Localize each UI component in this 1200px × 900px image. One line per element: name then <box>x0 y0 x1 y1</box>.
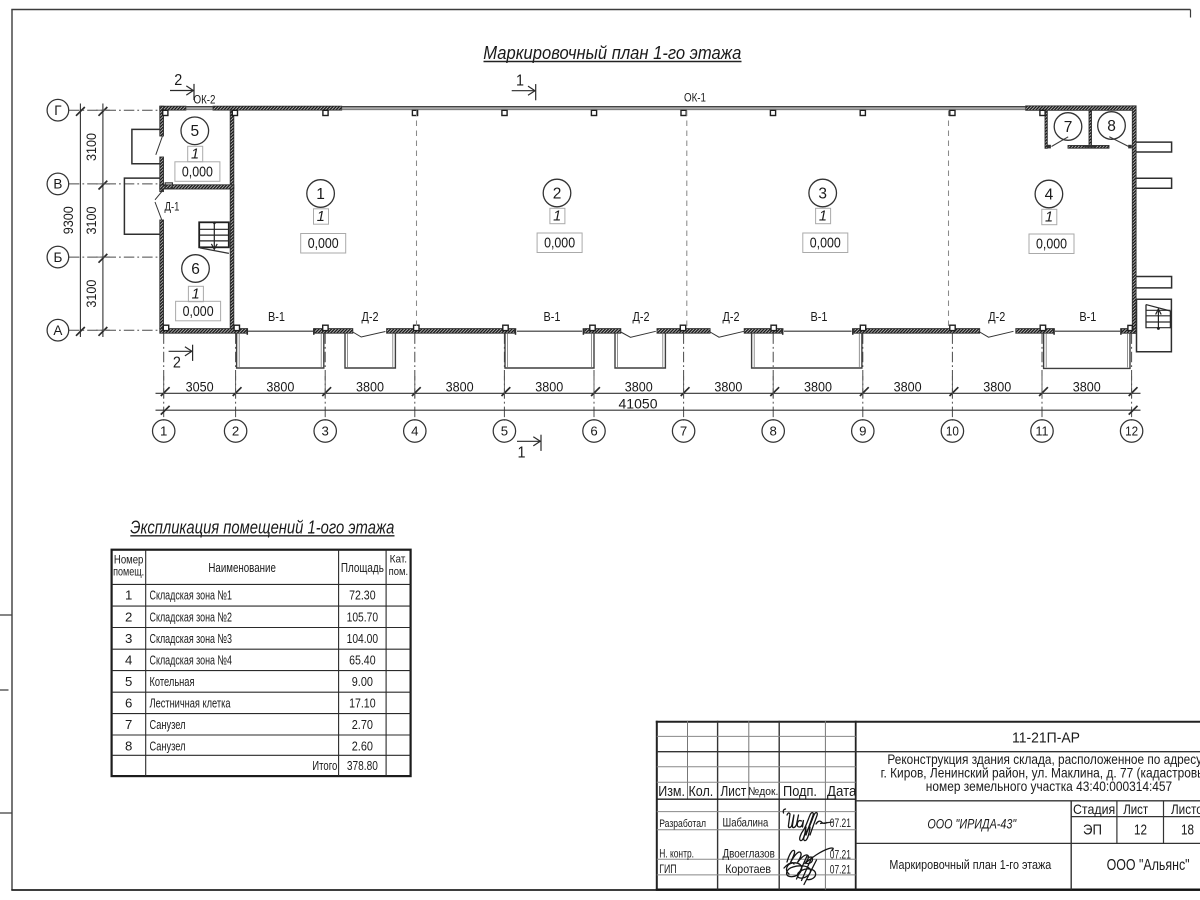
svg-text:72.30: 72.30 <box>349 588 376 603</box>
svg-text:Наименование: Наименование <box>208 560 276 575</box>
svg-text:3800: 3800 <box>625 379 653 395</box>
svg-text:2: 2 <box>125 609 132 624</box>
svg-text:8: 8 <box>1107 118 1116 135</box>
svg-text:2.70: 2.70 <box>352 717 373 732</box>
svg-text:07.21: 07.21 <box>830 863 851 877</box>
svg-text:пом.: пом. <box>389 566 409 578</box>
svg-text:12: 12 <box>1125 424 1138 439</box>
svg-text:3: 3 <box>322 424 329 439</box>
svg-text:4: 4 <box>411 424 418 439</box>
svg-text:6: 6 <box>191 261 200 278</box>
svg-text:2: 2 <box>173 355 181 372</box>
svg-text:4: 4 <box>1045 186 1054 203</box>
svg-text:17.10: 17.10 <box>349 696 376 711</box>
svg-text:1: 1 <box>1045 210 1053 226</box>
svg-text:6: 6 <box>590 424 597 439</box>
svg-text:1: 1 <box>160 424 167 439</box>
svg-text:3800: 3800 <box>446 379 474 395</box>
svg-text:В-1: В-1 <box>811 310 828 324</box>
svg-text:Маркировочный план 1-го этажа: Маркировочный план 1-го этажа <box>889 857 1051 872</box>
svg-text:В: В <box>53 177 62 192</box>
svg-text:Д-2: Д-2 <box>633 310 650 324</box>
svg-text:Итого: Итого <box>312 758 337 773</box>
svg-text:07.21: 07.21 <box>830 816 851 830</box>
svg-text:3100: 3100 <box>84 133 100 161</box>
svg-text:Санузел: Санузел <box>150 738 186 753</box>
svg-text:ГИП: ГИП <box>659 862 676 876</box>
svg-text:1: 1 <box>819 209 827 225</box>
svg-text:0,000: 0,000 <box>1036 237 1067 253</box>
svg-text:Д-2: Д-2 <box>362 310 379 324</box>
svg-text:помещ.: помещ. <box>113 565 144 579</box>
svg-text:ОК-2: ОК-2 <box>194 93 216 106</box>
svg-text:номер земельного участка 43:40: номер земельного участка 43:40:000314:45… <box>926 779 1172 794</box>
svg-text:5: 5 <box>501 424 508 439</box>
svg-text:11: 11 <box>1036 424 1049 439</box>
svg-text:Складская зона №4: Складская зона №4 <box>150 653 233 668</box>
svg-text:Складская зона №1: Складская зона №1 <box>150 588 233 603</box>
svg-text:0,000: 0,000 <box>182 164 213 180</box>
svg-text:41050: 41050 <box>619 396 658 412</box>
svg-text:Н. контр.: Н. контр. <box>659 847 694 860</box>
svg-text:Экспликация помещений 1-ого эт: Экспликация помещений 1-ого этажа <box>130 517 394 537</box>
svg-text:0,000: 0,000 <box>183 304 214 320</box>
svg-text:Лист: Лист <box>1123 802 1148 817</box>
svg-text:ООО "ИРИДА-43": ООО "ИРИДА-43" <box>927 817 1017 832</box>
svg-text:Коротаев: Коротаев <box>725 862 771 876</box>
svg-text:Б: Б <box>53 250 62 265</box>
svg-text:Шабалина: Шабалина <box>723 816 769 830</box>
svg-text:8: 8 <box>770 424 777 439</box>
svg-text:№док.: №док. <box>748 786 778 798</box>
svg-text:Разработал: Разработал <box>659 818 706 830</box>
svg-text:3800: 3800 <box>356 379 384 395</box>
svg-text:В-1: В-1 <box>1079 310 1096 324</box>
svg-text:3800: 3800 <box>1073 379 1101 395</box>
svg-text:7: 7 <box>680 424 687 439</box>
svg-text:6: 6 <box>125 696 132 711</box>
svg-text:12: 12 <box>1134 823 1147 839</box>
svg-text:5: 5 <box>190 123 199 140</box>
svg-text:1: 1 <box>191 147 199 163</box>
svg-text:2: 2 <box>174 72 182 89</box>
svg-text:Стадия: Стадия <box>1073 802 1115 817</box>
svg-text:Площадь: Площадь <box>341 560 384 575</box>
svg-text:2: 2 <box>553 185 562 202</box>
svg-text:В-1: В-1 <box>268 310 285 324</box>
svg-text:3: 3 <box>818 185 827 202</box>
svg-text:2: 2 <box>232 424 239 439</box>
svg-text:Котельная: Котельная <box>150 674 195 689</box>
svg-text:18: 18 <box>1181 823 1194 839</box>
svg-text:А: А <box>53 323 62 338</box>
svg-text:11-21П-АР: 11-21П-АР <box>1012 729 1080 746</box>
svg-text:104.00: 104.00 <box>347 631 378 646</box>
svg-text:3800: 3800 <box>894 379 922 395</box>
svg-text:Складская зона №3: Складская зона №3 <box>150 631 233 646</box>
svg-text:2.60: 2.60 <box>352 738 373 753</box>
svg-text:3100: 3100 <box>84 280 100 308</box>
svg-text:9300: 9300 <box>61 206 77 234</box>
svg-text:Подп.: Подп. <box>783 784 817 800</box>
svg-text:3800: 3800 <box>804 379 832 395</box>
svg-text:Дата: Дата <box>827 784 857 800</box>
svg-text:Лист: Лист <box>721 784 747 800</box>
svg-text:1: 1 <box>316 186 325 203</box>
svg-text:3800: 3800 <box>535 379 563 395</box>
svg-text:ООО "Альянс": ООО "Альянс" <box>1107 857 1190 874</box>
svg-text:3100: 3100 <box>84 206 100 234</box>
svg-text:3800: 3800 <box>714 379 742 395</box>
svg-text:8: 8 <box>125 738 132 753</box>
svg-text:Г: Г <box>54 103 62 118</box>
svg-text:10: 10 <box>946 424 959 439</box>
svg-text:Д-1: Д-1 <box>165 201 180 214</box>
svg-text:1: 1 <box>317 209 325 225</box>
svg-text:Лестничная клетка: Лестничная клетка <box>150 696 231 711</box>
svg-text:0,000: 0,000 <box>308 236 339 252</box>
svg-text:7: 7 <box>1064 119 1073 136</box>
svg-text:3800: 3800 <box>983 379 1011 395</box>
svg-text:378.80: 378.80 <box>347 758 378 773</box>
svg-text:Кат.: Кат. <box>390 554 408 566</box>
svg-text:1: 1 <box>553 209 561 225</box>
svg-text:1: 1 <box>192 287 200 303</box>
svg-text:Д-2: Д-2 <box>988 310 1005 324</box>
svg-text:1: 1 <box>125 588 132 603</box>
svg-text:5: 5 <box>125 674 132 689</box>
svg-text:Складская зона №2: Складская зона №2 <box>150 609 233 624</box>
svg-text:3800: 3800 <box>266 379 294 395</box>
svg-text:Маркировочный план 1-го этажа: Маркировочный план 1-го этажа <box>483 42 741 63</box>
svg-text:Листов: Листов <box>1171 802 1200 817</box>
svg-text:В-1: В-1 <box>544 310 561 324</box>
svg-text:7: 7 <box>125 717 132 732</box>
svg-text:9: 9 <box>859 424 866 439</box>
svg-text:4: 4 <box>125 653 132 668</box>
svg-text:Изм.: Изм. <box>658 784 685 800</box>
svg-text:1: 1 <box>518 445 526 462</box>
svg-text:105.70: 105.70 <box>347 609 378 624</box>
svg-text:ОК-1: ОК-1 <box>684 91 706 104</box>
svg-text:65.40: 65.40 <box>349 653 376 668</box>
svg-text:0,000: 0,000 <box>544 236 575 252</box>
svg-text:Кол.: Кол. <box>689 784 714 800</box>
svg-text:1: 1 <box>516 72 524 89</box>
svg-text:9.00: 9.00 <box>352 674 373 689</box>
svg-text:3050: 3050 <box>186 379 214 395</box>
svg-text:Двоеглазов: Двоеглазов <box>723 846 776 860</box>
svg-text:Д-2: Д-2 <box>723 310 740 324</box>
svg-text:Санузел: Санузел <box>150 717 186 732</box>
svg-text:3: 3 <box>125 631 132 646</box>
svg-text:0,000: 0,000 <box>810 236 841 252</box>
svg-text:ЭП: ЭП <box>1083 823 1102 839</box>
